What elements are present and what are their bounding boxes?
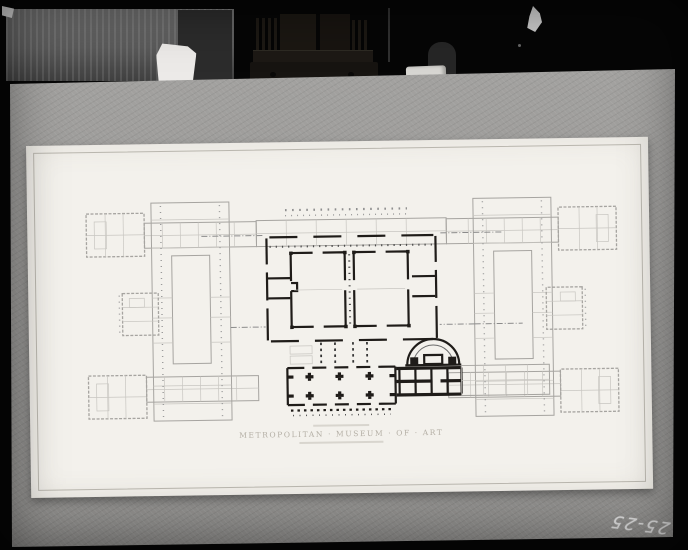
stack-rooms bbox=[396, 323, 550, 397]
corner-paper-scrap bbox=[2, 6, 14, 18]
rack-slats-right bbox=[352, 20, 370, 52]
caption-subtitle-top bbox=[313, 424, 369, 427]
proposed-wing-right bbox=[438, 196, 619, 417]
rack-hole bbox=[270, 72, 276, 77]
rack-slats-left bbox=[256, 18, 278, 52]
hall-pier-clusters bbox=[287, 372, 395, 401]
north-gallery-band bbox=[256, 208, 447, 247]
dust-speck bbox=[518, 44, 521, 47]
hanging-white-clip bbox=[524, 6, 542, 32]
wall-streak bbox=[388, 8, 390, 62]
rack-block bbox=[320, 14, 350, 52]
rack-block bbox=[280, 14, 316, 52]
existing-central-block bbox=[266, 235, 437, 366]
white-paper-scrap bbox=[155, 43, 196, 84]
entrance-great-hall bbox=[287, 345, 396, 416]
rack-hole bbox=[348, 72, 354, 77]
print-sheet: METROPOLITAN · MUSEUM · OF · ART bbox=[26, 137, 653, 498]
apse-lecture-hall bbox=[405, 339, 461, 366]
floor-plan-drawing bbox=[73, 187, 628, 431]
photograph-of-floor-plan: METROPOLITAN · MUSEUM · OF · ART 25-25 bbox=[0, 0, 688, 550]
proposed-wing-left bbox=[86, 201, 267, 422]
